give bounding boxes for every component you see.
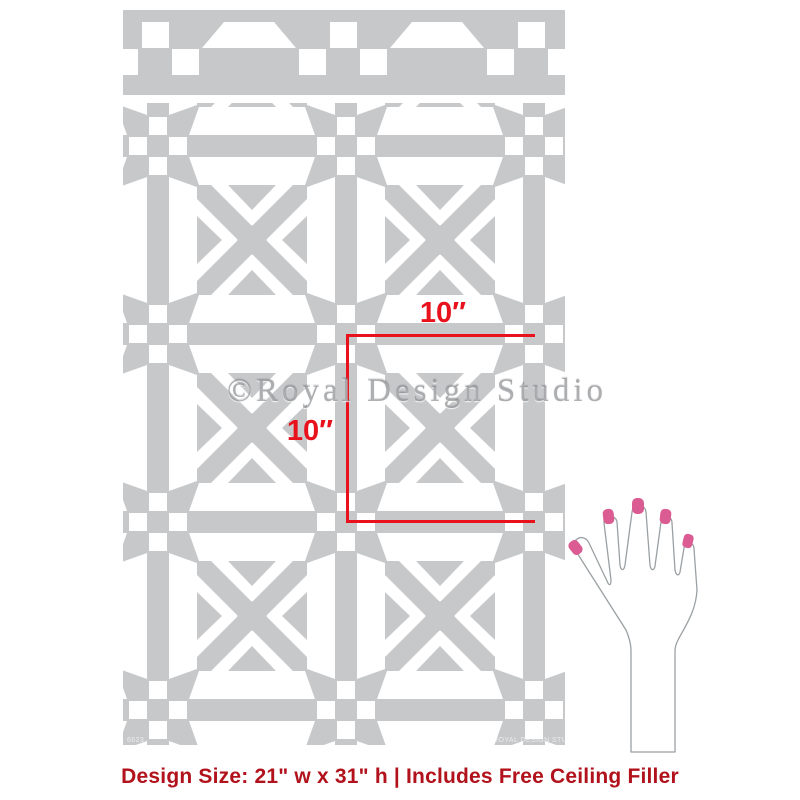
sheet-copyright: ©2023 ROYAL DESIGN STUDIO [468,737,581,744]
hand-outline [574,505,697,752]
index-nail-icon [602,508,615,524]
height-measurement-label: 10″ [270,417,350,446]
stencil-product-image: ©Royal Design Studio 10″ 10″ 6623 ©2023 … [0,0,800,800]
sheet-code: 6623 [127,737,144,744]
hand-scale-illustration [567,498,697,752]
ring-nail-icon [659,508,672,524]
design-size-caption: Design Size: 21" w x 31" h | Includes Fr… [0,765,800,789]
ceiling-filler-strip [123,10,565,95]
middle-nail-icon [632,498,644,514]
width-measurement-label: 10″ [398,299,488,328]
watermark: ©Royal Design Studio [197,373,637,410]
